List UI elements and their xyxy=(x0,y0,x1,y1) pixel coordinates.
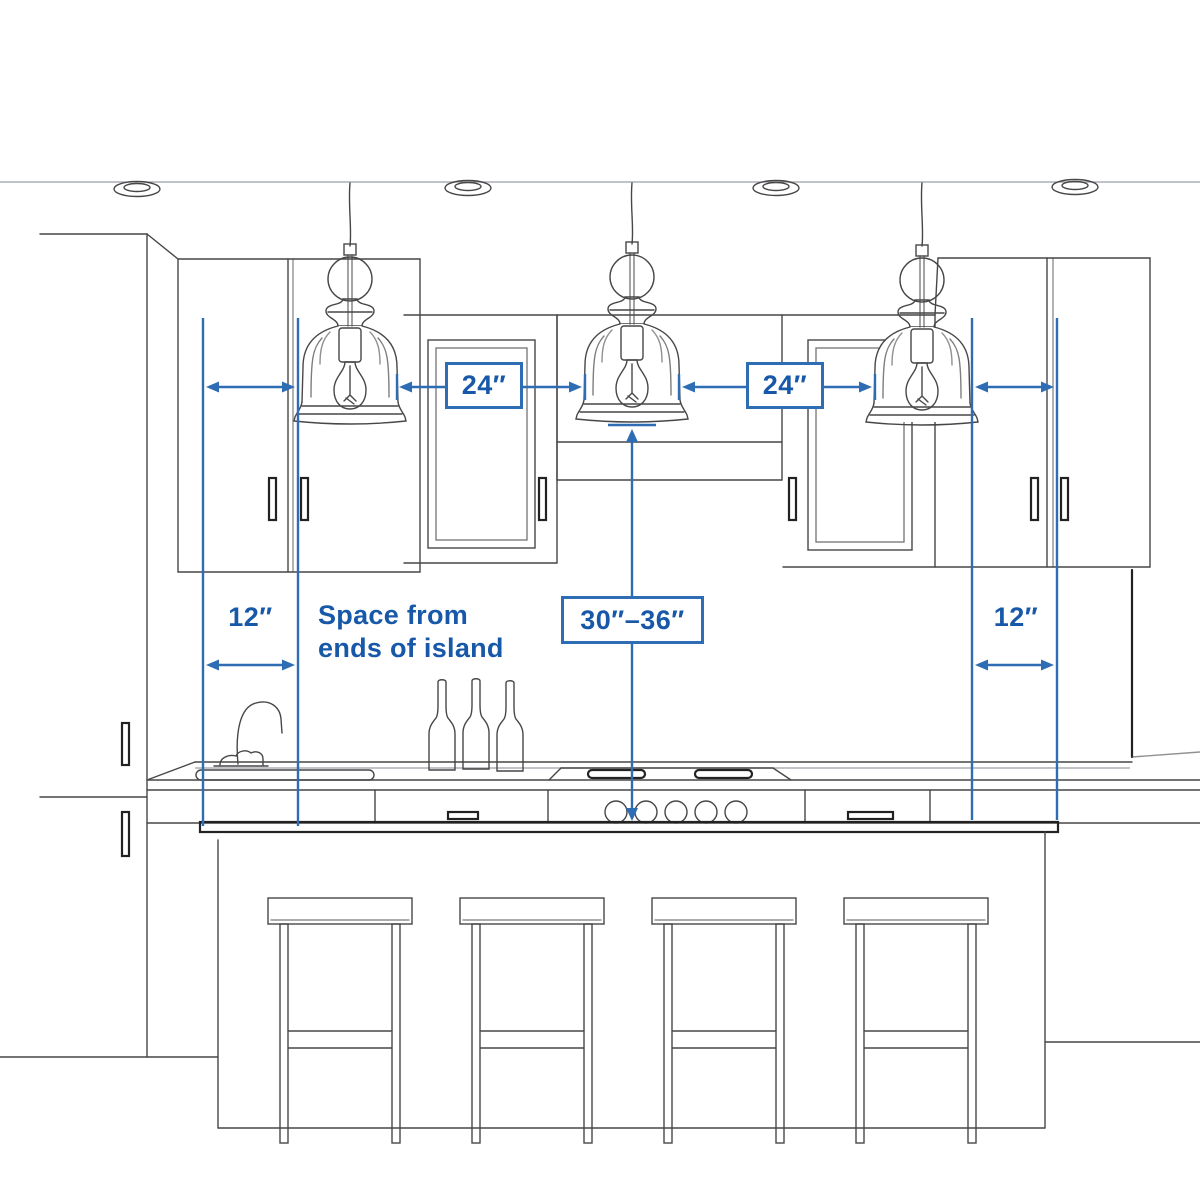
pendant-spacing-label-right: 24″ xyxy=(746,362,824,409)
burner-grate xyxy=(588,770,645,778)
cabinet-handle xyxy=(269,478,276,520)
pendant-height-label: 30″–36″ xyxy=(561,596,704,644)
pendant-spacing-label-left: 24″ xyxy=(445,362,523,409)
cabinet-handle xyxy=(1061,478,1068,520)
wine-bottle-icon xyxy=(497,681,523,771)
barstool-icon xyxy=(652,898,796,1143)
faucet xyxy=(214,702,282,766)
recessed-light-icon xyxy=(753,181,799,196)
pendant-cords xyxy=(349,183,922,246)
drawer-handle xyxy=(848,812,893,819)
left-base-cabinets xyxy=(122,723,129,856)
wine-bottle-icon xyxy=(463,679,489,769)
pendant-spacing-diagram: 24″ 24″ 30″–36″ 12″ 12″ Space from ends … xyxy=(0,0,1200,1200)
drawer-band xyxy=(147,790,1200,823)
burner-grate xyxy=(695,770,752,778)
end-clearance-note: Space from ends of island xyxy=(318,599,538,665)
countertop xyxy=(40,762,1200,823)
recessed-light-icon xyxy=(1052,180,1098,195)
end-clearance-label-right: 12″ xyxy=(967,602,1065,633)
recessed-light-icon xyxy=(445,181,491,196)
sink xyxy=(196,770,374,780)
recessed-light-icon xyxy=(114,182,160,197)
end-clearance-label-left: 12″ xyxy=(198,602,303,633)
barstool-icon xyxy=(268,898,412,1143)
glass-cabinet-left xyxy=(404,315,557,563)
pendant-light-icon xyxy=(866,245,978,425)
bar-stools xyxy=(268,898,988,1143)
cabinet-handle xyxy=(1031,478,1038,520)
kitchen-island xyxy=(0,822,1200,1128)
cabinet-handle xyxy=(122,812,129,856)
barstool-icon xyxy=(460,898,604,1143)
wine-bottles xyxy=(429,679,523,771)
pendant-height-value: 30″–36″ xyxy=(580,605,684,636)
pendant-spacing-value: 24″ xyxy=(462,370,506,401)
cabinet-handle xyxy=(789,478,796,520)
pendant-light-icon xyxy=(294,244,406,424)
wine-bottle-icon xyxy=(429,680,455,770)
barstool-icon xyxy=(844,898,988,1143)
pendant-light-icon xyxy=(576,242,688,422)
cabinet-handle xyxy=(122,723,129,765)
cabinet-handle xyxy=(301,478,308,520)
drawer-handle xyxy=(448,812,478,819)
cabinet-handle xyxy=(539,478,546,520)
cooktop xyxy=(549,768,791,780)
pendant-spacing-value: 24″ xyxy=(763,370,807,401)
cooktop-knobs xyxy=(605,801,747,823)
